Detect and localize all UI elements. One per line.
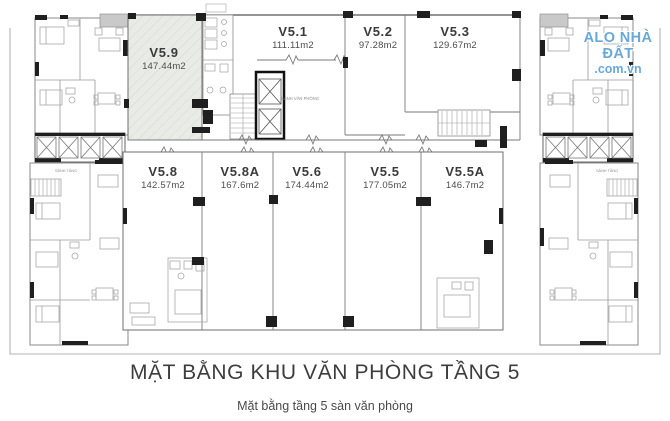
unit-area: 146.7m2 <box>410 180 520 191</box>
unit-area-v5-9 <box>128 15 202 140</box>
floor-plan-page: SẢNH VĂN PHÒNG SẢNH TẦNG SẢNH TẦNG V5.9 … <box>0 0 670 421</box>
watermark-line2: .com.vn <box>568 63 668 77</box>
unit-v5-3: V5.3 129.67m2 <box>400 25 510 51</box>
left-wing-lobby-label: SẢNH TẦNG <box>55 168 77 173</box>
central-stairs <box>230 94 256 139</box>
unit-v5-5a: V5.5A 146.7m2 <box>410 165 520 191</box>
southeast-stairs <box>438 110 490 136</box>
office-lobby-label: SẢNH VĂN PHÒNG <box>281 96 319 101</box>
watermark-line1: ALO NHÀ ĐẤT <box>568 31 668 63</box>
watermark-logo: ALO NHÀ ĐẤT .com.vn <box>568 31 668 77</box>
unit-name: V5.5A <box>410 165 520 179</box>
right-wing-lobby-label: SẢNH TẦNG <box>596 168 618 173</box>
page-title: MẶT BẰNG KHU VĂN PHÒNG TẦNG 5 <box>0 361 670 385</box>
page-subtitle: Mặt bằng tầng 5 sàn văn phòng <box>0 399 670 413</box>
unit-area: 147.44m2 <box>109 61 219 72</box>
unit-area: 129.67m2 <box>400 40 510 51</box>
unit-v5-9: V5.9 147.44m2 <box>109 46 219 72</box>
central-elevators <box>256 72 284 139</box>
unit-name: V5.3 <box>400 25 510 39</box>
unit-name: V5.9 <box>109 46 219 60</box>
